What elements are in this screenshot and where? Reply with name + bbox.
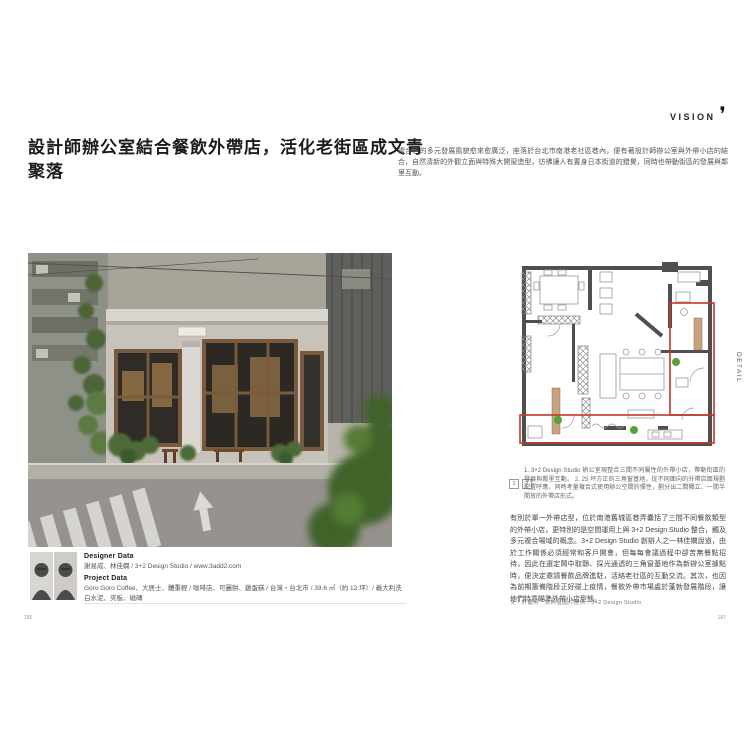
page-title: 設計師辦公室結合餐飲外帶店，活化老街區成文青聚落: [28, 136, 428, 184]
section-label: VISION: [670, 112, 716, 122]
project-data-block: Project Data Goro Goro Coffee、大居士、體重輕 / …: [84, 575, 406, 604]
section-tag: VISION ❜: [670, 112, 726, 122]
intro-paragraph: 複合店的多元發展風貌愈來愈廣泛，座落於台北市南港老社區巷內，便有著設計師辦公室與…: [398, 146, 728, 179]
page-number-left: 186: [24, 615, 32, 621]
caption-marker-1: 1: [509, 479, 519, 489]
designer-data-text: 謝易成、林佳嫻 / 3+2 Design Studio / www.3add2.…: [84, 562, 406, 572]
figure-caption: 1. 3+2 Design Studio 辦公室現整合三間不同屬性的外帶小店，帶…: [524, 467, 725, 501]
designer-data-heading: Designer Data: [84, 553, 406, 560]
office-floor-plan: [508, 258, 728, 460]
credit-line: 文｜許嘉芬 資料暨圖片提供｜3+2 Design Studio: [510, 598, 641, 606]
cafe-corner-photo: [28, 253, 392, 547]
article-body: 有別於單一外帶店型，位於南港舊城區巷弄囊括了三間不同餐飲類型的外帶小店，更特別的…: [510, 513, 726, 605]
page-number-right: 187: [718, 615, 726, 621]
project-data-heading: Project Data: [84, 575, 406, 582]
footer-rule: [84, 603, 406, 604]
side-tab-detail: DETAIL: [735, 352, 742, 383]
brush-comma-icon: ❜: [720, 110, 726, 120]
magazine-spread: 設計師辦公室結合餐飲外帶店，活化老街區成文青聚落 VISION ❜ 複合店的多元…: [0, 0, 750, 750]
project-data-text: Goro Goro Coffee、大居士、體重輕 / 咖啡店、可麗餅、雞蛋糕 /…: [84, 584, 406, 604]
designer-portraits: [30, 552, 77, 600]
designer-data-block: Designer Data 謝易成、林佳嫻 / 3+2 Design Studi…: [84, 553, 406, 572]
